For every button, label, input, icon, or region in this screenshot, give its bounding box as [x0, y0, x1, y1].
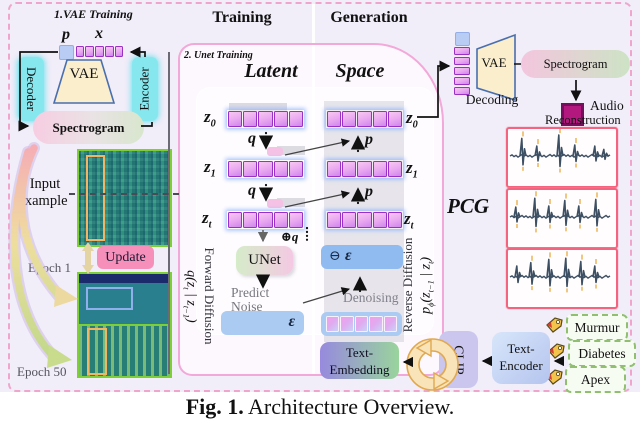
pcg-waveform-2 [506, 188, 618, 249]
epoch50-spectrogram-image [77, 324, 172, 378]
x-token-label: x [95, 25, 103, 43]
latent-token-cell [243, 212, 257, 229]
latent-token-cell [258, 212, 272, 229]
latent-token-cell [340, 316, 353, 333]
latent-token-cell [243, 161, 257, 178]
zt-token-row-gen [326, 211, 403, 229]
decode-p-square [455, 32, 470, 46]
plus-q-label: ⊕q [281, 229, 298, 245]
z1-token-row-train [227, 160, 304, 178]
panel-divider-line [168, 52, 170, 374]
latent-token-cell [258, 161, 272, 178]
spectrogram-right-label: Spectrogram [544, 57, 608, 72]
spectrogram-left-label: Spectrogram [53, 120, 125, 136]
latent-token-cell [373, 161, 387, 178]
slice-nub-2 [267, 199, 283, 208]
update-label: Update [105, 250, 145, 266]
tag-murmur-label: Murmur [575, 320, 620, 336]
vae-label: VAE [52, 66, 116, 83]
frozen-cycle-icon [404, 336, 461, 393]
latent-token-cell [327, 111, 341, 128]
tag-apex: Apex [565, 366, 626, 393]
text-encoder-box: Text- Encoder [492, 332, 550, 384]
encoder-label: Encoder [137, 67, 153, 110]
update-box: Update [97, 246, 154, 269]
reverse-diffusion-label: Reverse Diffusion [400, 220, 416, 350]
z0-label-gen: z0 [406, 108, 428, 130]
latent-token-cell [454, 47, 471, 56]
latent-token-cell [342, 212, 356, 229]
vae-decode-label: VAE [476, 55, 512, 71]
latent-token-cell [95, 46, 104, 58]
z0-label-train: z0 [204, 107, 226, 129]
noisy-latent-row [321, 312, 402, 336]
vae-training-title: 1.VAE Training [54, 7, 166, 22]
latent-token-cell [355, 316, 368, 333]
latent-token-cell [289, 161, 303, 178]
tag-diabetes-label: Diabetes [578, 346, 625, 362]
epoch1-label: Epoch 1 [28, 260, 71, 276]
latent-token-cell [115, 46, 124, 58]
reverse-diffusion-formula: pϕ(zt−1 | zt) [419, 220, 436, 350]
latent-token-cell [388, 161, 402, 178]
spectrogram-pill-left: Spectrogram [33, 111, 144, 144]
latent-token-cell [373, 212, 387, 229]
text-encoder-line1: Text- [492, 340, 550, 357]
z1-label-train: z1 [204, 157, 226, 179]
denoising-label: Denoising [343, 290, 399, 306]
zt-label-train: zt [202, 208, 226, 230]
spectrogram-pill-right: Spectrogram [521, 50, 630, 78]
latent-token-cell [105, 46, 114, 58]
latent-token-cell [76, 46, 85, 58]
text-embedding-line2: Embedding [320, 361, 399, 378]
space-label: Space [322, 60, 398, 83]
p-label-1: p [365, 131, 373, 149]
latent-token-cell [228, 212, 242, 229]
latent-token-cell [369, 316, 382, 333]
latent-token-cell [274, 111, 288, 128]
figure-page: 1.VAE Training p x Decoder Encoder VAE S… [0, 0, 640, 425]
x-token-row [75, 45, 124, 58]
latent-token-cell [357, 161, 371, 178]
q-label-2: q [248, 182, 256, 200]
latent-token-cell [327, 161, 341, 178]
p-label-2: p [365, 183, 373, 201]
latent-token-cell [357, 111, 371, 128]
figure-caption: Fig. 1. Architecture Overview. [0, 394, 640, 420]
decoder-label: Decoder [23, 67, 39, 111]
encoder-box: Encoder [132, 57, 158, 121]
latent-token-cell [454, 67, 471, 76]
predict-noise-label: Predict Noise [231, 286, 287, 314]
training-header: Training [196, 9, 288, 27]
latent-label: Latent [236, 60, 306, 83]
p-token-label: p [62, 26, 70, 44]
caption-number: Fig. 1. [186, 394, 244, 419]
unet-node-label: UNet [248, 252, 281, 269]
forward-diffusion-label: Forward Diffusion [201, 231, 217, 361]
latent-token-cell [454, 57, 471, 66]
tag-icon [545, 316, 565, 334]
slice-dashed-line [69, 193, 179, 195]
latent-token-cell [85, 46, 94, 58]
input-example-label-2: example [12, 193, 74, 210]
zt-token-row-train [227, 211, 304, 229]
audio-label-2: Reconstruction [545, 113, 621, 128]
epsilon-glyph: ε [288, 313, 295, 331]
epsilon-glyph-gen: ε [345, 247, 352, 265]
z1-token-row-gen [326, 160, 403, 178]
epsilon-box: ε [221, 311, 304, 335]
latent-token-cell [274, 212, 288, 229]
latent-token-cell [388, 111, 402, 128]
forward-diffusion-formula: q(zt | zt−1) [182, 231, 199, 361]
text-embedding-line1: Text- [320, 344, 399, 361]
epoch50-label: Epoch 50 [17, 364, 66, 380]
generation-header: Generation [316, 9, 422, 27]
predict-line1: Predict [231, 286, 287, 300]
tag-apex-label: Apex [581, 372, 610, 388]
epoch1-highlight [86, 287, 133, 310]
z0-token-row-gen [326, 110, 403, 128]
latent-token-cell [326, 316, 339, 333]
latent-token-cell [373, 111, 387, 128]
unet-node: UNet [236, 246, 293, 275]
decoding-label: Decoding [459, 92, 525, 108]
z1-label-gen: z1 [406, 158, 428, 180]
pcg-waveform-1 [506, 127, 618, 188]
q-label-1: q [248, 130, 256, 148]
epoch50-highlight [87, 328, 107, 375]
z0-token-row-train [227, 110, 304, 128]
text-encoder-line2: Encoder [492, 357, 550, 374]
input-example-label-1: Input [18, 176, 72, 193]
minus-epsilon-box: ⊖ ε [321, 245, 403, 269]
pcg-label: PCG [447, 194, 489, 219]
latent-token-cell [357, 212, 371, 229]
latent-token-cell [454, 77, 471, 86]
caption-text: Architecture Overview. [248, 394, 454, 419]
text-embedding-box: Text- Embedding [320, 342, 399, 379]
latent-token-cell [258, 111, 272, 128]
latent-stack [453, 46, 471, 96]
audio-label-1: Audio [590, 98, 624, 114]
tag-murmur: Murmur [566, 314, 628, 341]
latent-token-cell [289, 111, 303, 128]
latent-token-cell [228, 161, 242, 178]
epoch1-spectrogram-image [77, 272, 172, 326]
latent-token-cell [228, 111, 242, 128]
latent-token-cell [342, 161, 356, 178]
latent-token-cell [342, 111, 356, 128]
latent-token-cell [274, 161, 288, 178]
latent-token-cell [327, 212, 341, 229]
tag-icon [547, 342, 567, 360]
input-window-highlight [86, 155, 105, 241]
latent-token-cell [289, 212, 303, 229]
latent-token-cell [384, 316, 397, 333]
decoder-box: Decoder [18, 57, 44, 121]
pcg-waveform-3 [506, 248, 618, 309]
input-spectrogram-image [77, 149, 172, 247]
slice-nub-1 [267, 147, 283, 156]
tag-diabetes: Diabetes [568, 340, 636, 367]
latent-token-cell [243, 111, 257, 128]
minus-glyph: ⊖ [329, 248, 341, 265]
